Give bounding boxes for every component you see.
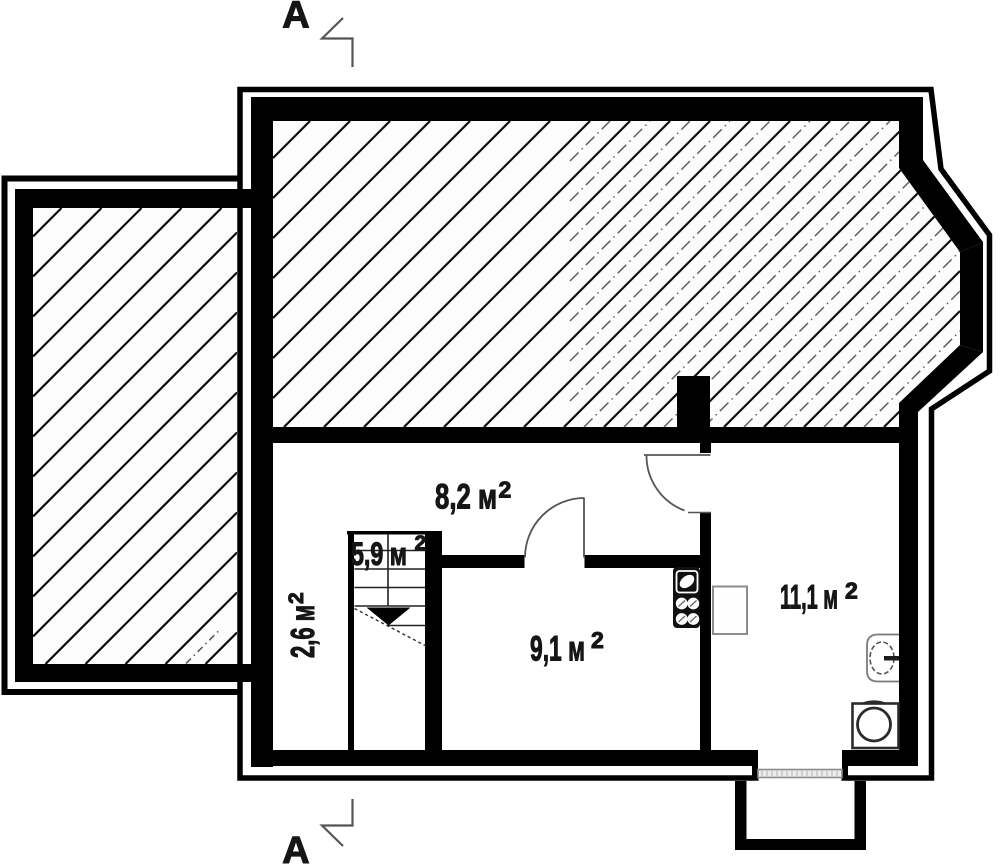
svg-text:9,1 м: 9,1 м bbox=[530, 630, 585, 669]
svg-text:A: A bbox=[282, 0, 309, 37]
svg-text:5,9 м: 5,9 м bbox=[351, 536, 407, 572]
svg-text:2: 2 bbox=[845, 578, 858, 604]
svg-text:2: 2 bbox=[285, 592, 308, 604]
svg-text:8,2 м: 8,2 м bbox=[435, 478, 497, 517]
svg-text:A: A bbox=[282, 830, 309, 866]
svg-text:2,6 м: 2,6 м bbox=[284, 605, 321, 658]
svg-text:2: 2 bbox=[499, 477, 512, 503]
svg-text:2: 2 bbox=[591, 627, 604, 653]
svg-text:2: 2 bbox=[415, 532, 427, 555]
svg-text:11,1 м: 11,1 м bbox=[780, 579, 838, 617]
